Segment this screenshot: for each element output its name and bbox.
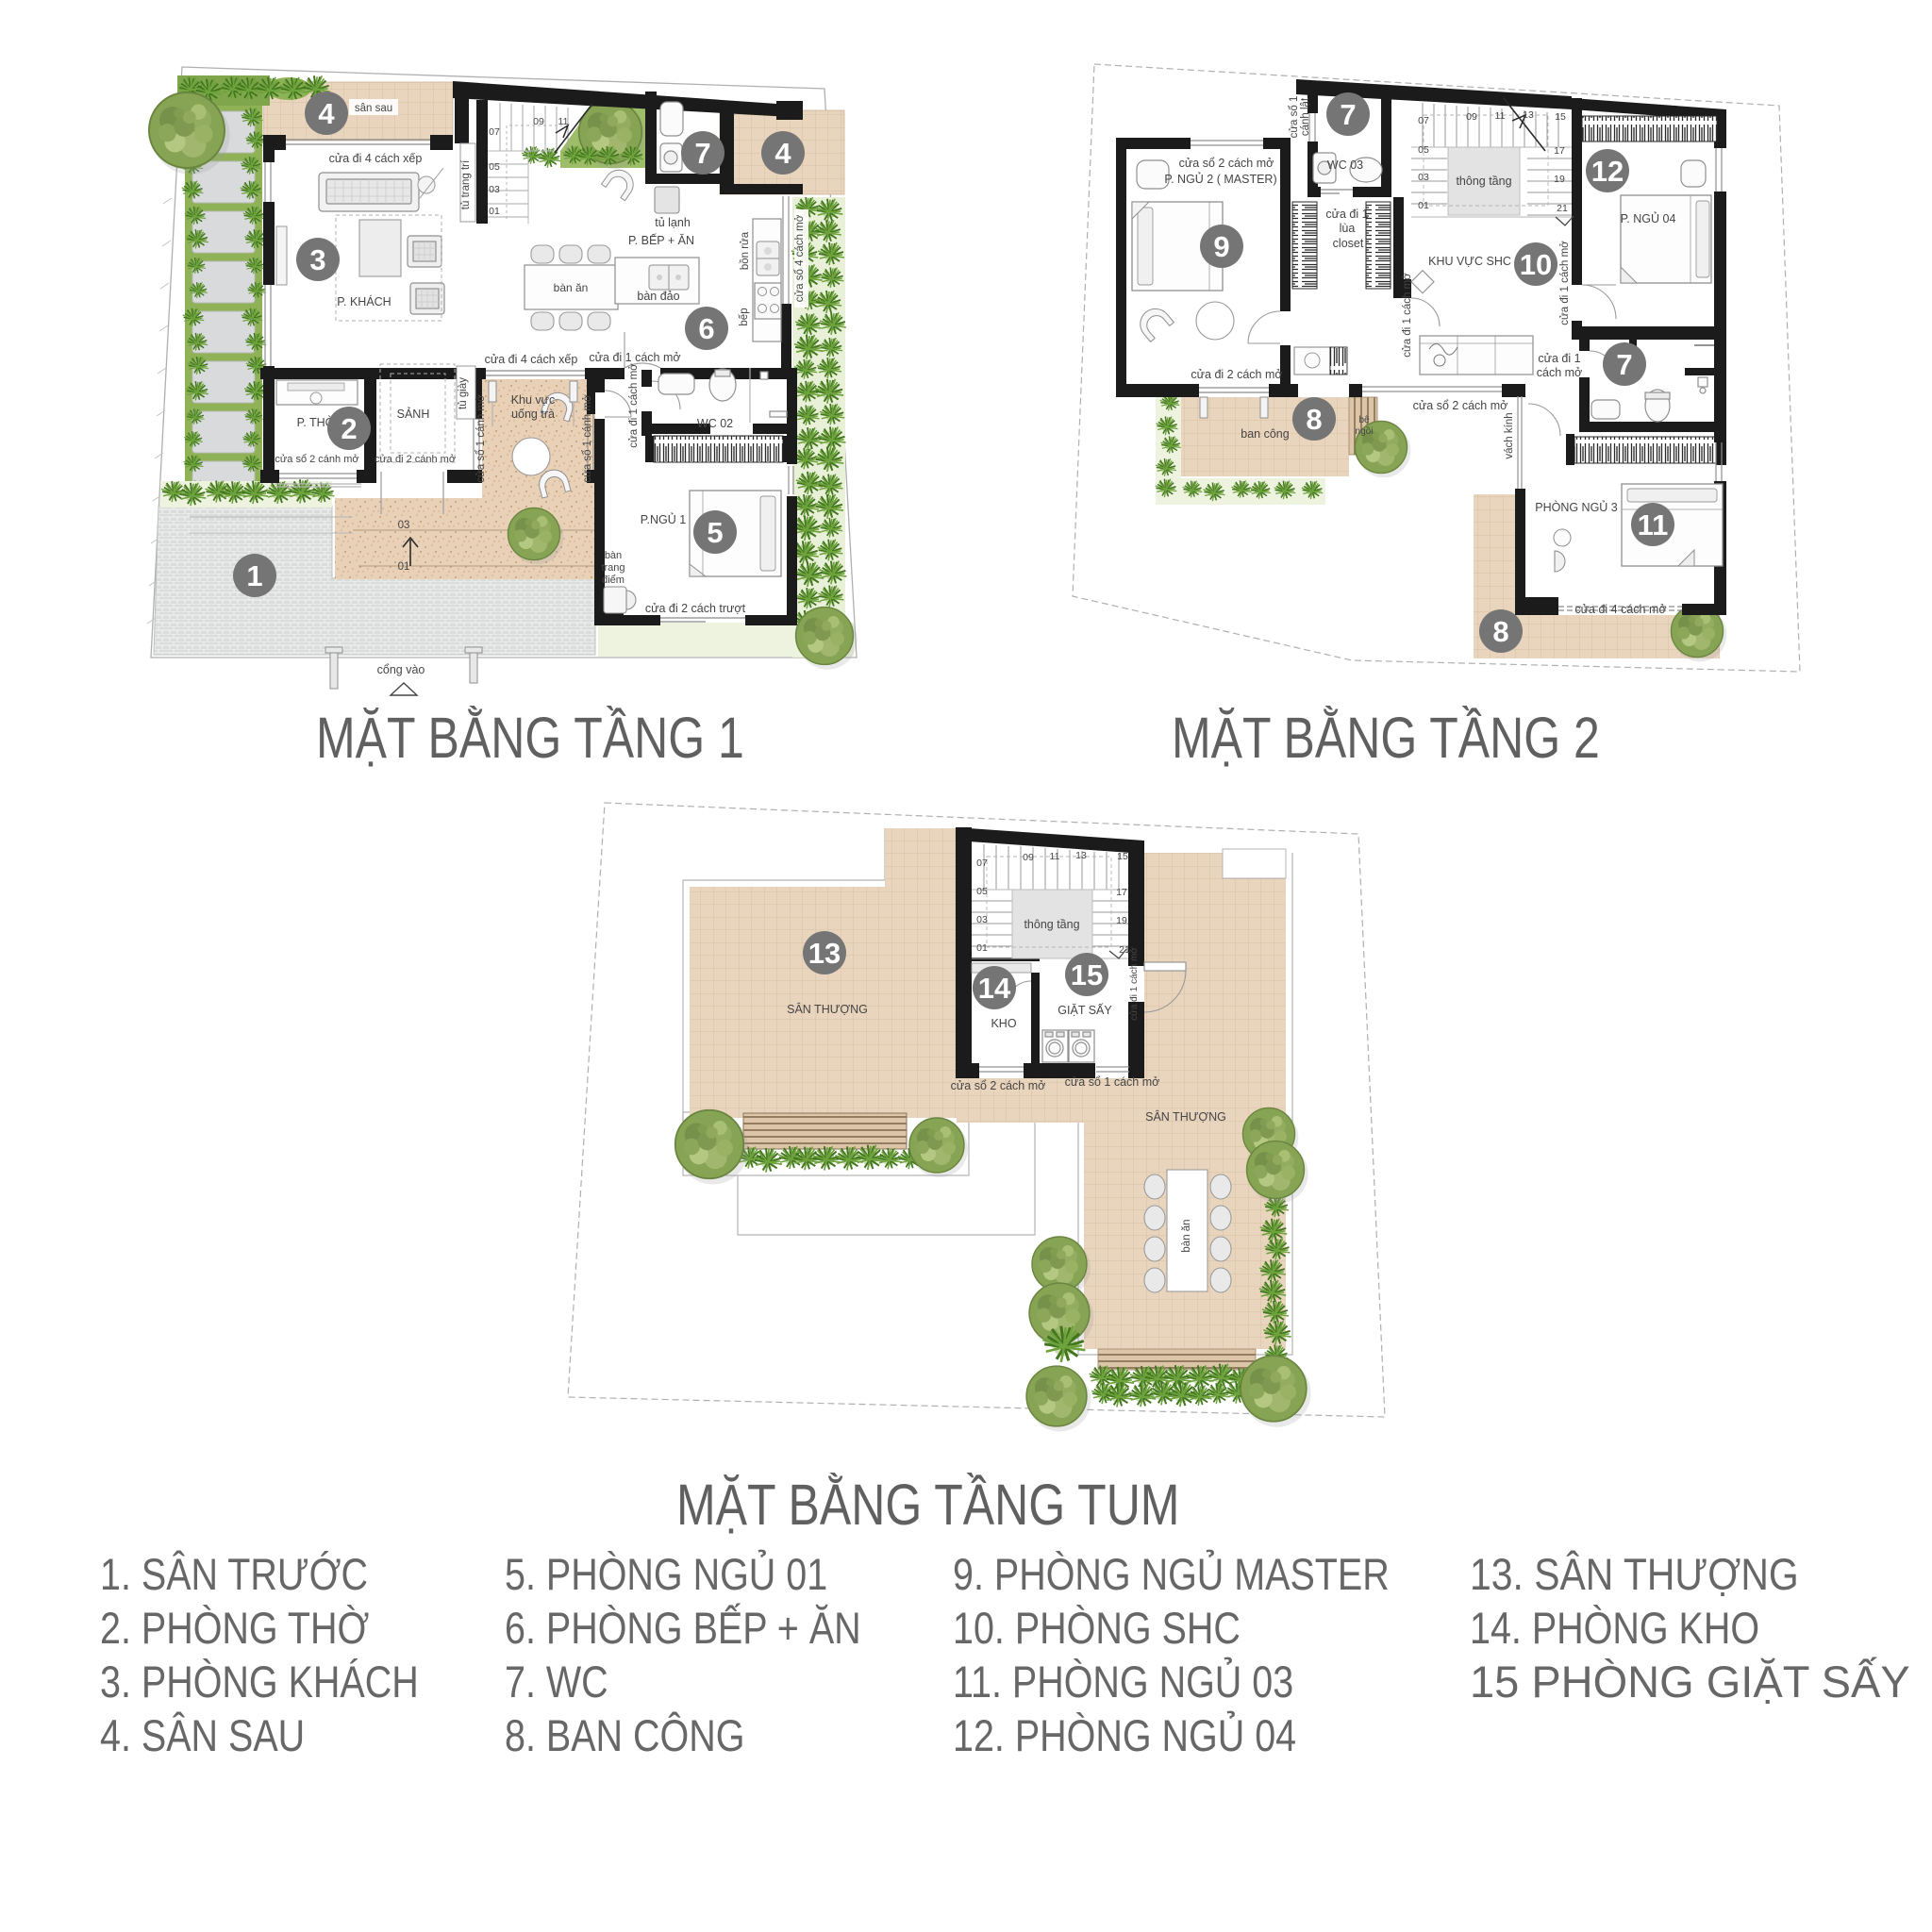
svg-text:tủ lạnh: tủ lạnh (655, 216, 691, 229)
svg-text:03: 03 (976, 914, 988, 925)
svg-text:GIẶT SẤY: GIẶT SẤY (1058, 1003, 1112, 1017)
svg-text:12. PHÒNG NGỦ 04: 12. PHÒNG NGỦ 04 (953, 1711, 1296, 1761)
svg-text:14. PHÒNG KHO: 14. PHÒNG KHO (1470, 1605, 1759, 1654)
svg-text:13. SÂN THƯỢNG: 13. SÂN THƯỢNG (1470, 1550, 1799, 1599)
svg-text:tủ giày: tủ giày (458, 377, 469, 409)
svg-text:7: 7 (1616, 348, 1632, 381)
svg-text:cửa đi 4 cách xếp: cửa đi 4 cách xếp (485, 353, 578, 366)
svg-text:cửa đi 1 cách mở: cửa đi 1 cách mở (1559, 241, 1571, 325)
svg-text:01: 01 (489, 206, 500, 217)
svg-text:13: 13 (1075, 850, 1087, 861)
svg-text:MẶT BẰNG TẦNG TUM: MẶT BẰNG TẦNG TUM (676, 1473, 1179, 1537)
svg-text:11: 11 (1050, 851, 1060, 862)
svg-text:MẶT BẰNG TẦNG 2: MẶT BẰNG TẦNG 2 (1172, 706, 1600, 770)
svg-text:8: 8 (1492, 615, 1508, 648)
svg-text:SÂN THƯỢNG: SÂN THƯỢNG (787, 1002, 868, 1016)
svg-text:05: 05 (976, 886, 988, 897)
svg-text:uống trà: uống trà (511, 408, 555, 421)
svg-text:thông tầng: thông tầng (1456, 175, 1511, 188)
svg-text:P. NGỦ 2 ( MASTER): P. NGỦ 2 ( MASTER) (1164, 172, 1276, 186)
svg-text:1. SÂN TRƯỚC: 1. SÂN TRƯỚC (100, 1551, 368, 1600)
svg-text:15: 15 (1117, 851, 1128, 862)
svg-text:05: 05 (489, 161, 500, 173)
svg-text:4. SÂN SAU: 4. SÂN SAU (100, 1712, 305, 1761)
svg-text:WC 02: WC 02 (697, 417, 733, 430)
svg-text:07: 07 (1418, 115, 1429, 126)
svg-text:cửa đi 2 cánh mở: cửa đi 2 cánh mở (375, 454, 456, 465)
svg-text:7. WC: 7. WC (505, 1658, 608, 1707)
svg-text:bồn rửa: bồn rửa (740, 231, 751, 270)
svg-text:2. PHÒNG THỜ: 2. PHÒNG THỜ (100, 1605, 369, 1654)
svg-text:12: 12 (1591, 155, 1624, 188)
svg-text:cửa đi 4 cách xếp: cửa đi 4 cách xếp (329, 152, 423, 165)
svg-text:P. KHÁCH: P. KHÁCH (337, 294, 391, 308)
svg-text:13: 13 (808, 937, 841, 970)
svg-text:1: 1 (246, 559, 262, 592)
svg-text:cửa đi 1 cách mở: cửa đi 1 cách mở (1128, 947, 1140, 1021)
svg-text:11: 11 (1638, 508, 1669, 541)
svg-text:cửa sổ 1 cánh mở: cửa sổ 1 cánh mở (475, 394, 487, 483)
svg-text:10. PHÒNG SHC: 10. PHÒNG SHC (953, 1605, 1241, 1654)
svg-text:6: 6 (698, 312, 714, 345)
svg-text:lùa: lùa (1340, 222, 1356, 235)
svg-text:cửa đi 1: cửa đi 1 (1325, 208, 1368, 221)
svg-text:03: 03 (398, 520, 410, 531)
svg-text:cửa sổ 2 cách mở: cửa sổ 2 cách mở (1179, 157, 1274, 170)
svg-text:7: 7 (1340, 98, 1356, 131)
svg-text:2: 2 (341, 412, 357, 445)
svg-text:09: 09 (1023, 852, 1034, 863)
svg-text:trang: trang (601, 562, 625, 574)
svg-text:5. PHÒNG NGỦ 01: 5. PHÒNG NGỦ 01 (505, 1550, 827, 1600)
svg-text:4: 4 (318, 97, 335, 130)
svg-text:8: 8 (1306, 403, 1322, 436)
svg-text:09: 09 (1466, 111, 1477, 123)
svg-text:cửa sổ 2 cách mở: cửa sổ 2 cách mở (951, 1079, 1046, 1092)
svg-text:Khu vực: Khu vực (511, 393, 556, 407)
svg-text:bàn ăn: bàn ăn (554, 281, 589, 294)
svg-text:sân sau: sân sau (355, 103, 392, 114)
svg-text:11: 11 (558, 116, 569, 127)
svg-text:MẶT BẰNG TẦNG 1: MẶT BẰNG TẦNG 1 (316, 706, 744, 770)
svg-text:cửa sổ 1 cách mở: cửa sổ 1 cách mở (1065, 1075, 1160, 1089)
svg-text:3. PHÒNG KHÁCH: 3. PHÒNG KHÁCH (100, 1658, 419, 1707)
svg-text:9. PHÒNG NGỦ MASTER: 9. PHÒNG NGỦ MASTER (953, 1550, 1390, 1600)
svg-text:15: 15 (1555, 111, 1566, 123)
svg-text:05: 05 (1418, 144, 1429, 156)
svg-text:bệ: bệ (1358, 415, 1370, 425)
svg-text:cánh lật: cánh lật (1300, 97, 1311, 136)
svg-text:cửa đi 1: cửa đi 1 (1538, 352, 1580, 365)
svg-text:cửa sổ 2 cách mở: cửa sổ 2 cách mở (1413, 399, 1508, 412)
svg-text:bàn: bàn (605, 550, 622, 561)
svg-text:07: 07 (489, 126, 500, 138)
svg-text:3: 3 (309, 243, 325, 276)
svg-text:cửa đi 1 cách mở: cửa đi 1 cách mở (628, 363, 640, 448)
svg-text:closet: closet (1333, 237, 1364, 250)
svg-text:11: 11 (1495, 110, 1506, 122)
svg-text:tủ trang trí: tủ trang trí (460, 159, 472, 209)
svg-text:cổng vào: cổng vào (377, 663, 425, 676)
svg-text:07: 07 (976, 858, 988, 869)
svg-text:01: 01 (1418, 200, 1429, 211)
svg-text:7: 7 (694, 137, 710, 170)
svg-text:P. BẾP + ĂN: P. BẾP + ĂN (628, 233, 694, 247)
svg-text:vách kính: vách kính (1504, 412, 1515, 458)
svg-text:cửa sổ 1: cửa sổ 1 (1289, 96, 1300, 139)
svg-text:SÂN THƯỢNG: SÂN THƯỢNG (1145, 1109, 1226, 1124)
svg-text:SẢNH: SẢNH (397, 407, 430, 421)
svg-text:14: 14 (978, 972, 1011, 1005)
svg-text:cửa sổ 1 cánh mở: cửa sổ 1 cánh mở (582, 394, 593, 483)
svg-text:cách mở: cách mở (1537, 366, 1583, 379)
svg-text:13: 13 (1523, 109, 1534, 121)
svg-text:19: 19 (1554, 174, 1565, 185)
svg-text:P.NGỦ 1: P.NGỦ 1 (641, 512, 686, 526)
svg-text:bếp: bếp (739, 308, 750, 325)
svg-text:cửa đi 4 cách mở: cửa đi 4 cách mở (1574, 603, 1666, 616)
svg-text:bàn đảo: bàn đảo (637, 290, 679, 303)
svg-text:cửa đi 1 cách mở: cửa đi 1 cách mở (1402, 273, 1413, 358)
svg-text:09: 09 (533, 116, 544, 127)
svg-text:01: 01 (398, 561, 410, 573)
svg-text:điểm: điểm (602, 575, 625, 586)
svg-text:17: 17 (1116, 887, 1127, 898)
svg-text:thông tầng: thông tầng (1024, 918, 1079, 931)
svg-text:9: 9 (1213, 230, 1229, 263)
svg-text:KHU VỰC SHC: KHU VỰC SHC (1428, 255, 1511, 268)
svg-text:KHO: KHO (991, 1017, 1016, 1030)
svg-text:5: 5 (707, 516, 723, 549)
svg-text:cửa đi 1 cách mở: cửa đi 1 cách mở (589, 351, 680, 364)
svg-text:01: 01 (976, 942, 988, 954)
svg-text:bàn ăn: bàn ăn (1181, 1219, 1192, 1252)
svg-text:4: 4 (774, 137, 791, 170)
svg-text:ngồi: ngồi (1356, 425, 1374, 437)
svg-text:10: 10 (1520, 248, 1552, 281)
svg-text:19: 19 (1116, 915, 1127, 926)
svg-text:11. PHÒNG NGỦ 03: 11. PHÒNG NGỦ 03 (953, 1657, 1293, 1707)
svg-text:6. PHÒNG BẾP + ĂN: 6. PHÒNG BẾP + ĂN (505, 1605, 861, 1654)
svg-text:P. NGỦ 04: P. NGỦ 04 (1621, 211, 1676, 225)
svg-text:cửa sổ 4 cách mở: cửa sổ 4 cách mở (794, 214, 806, 302)
svg-text:cửa sổ 2 cánh mở: cửa sổ 2 cánh mở (275, 454, 358, 465)
svg-text:15: 15 (1071, 958, 1103, 991)
svg-text:ban công: ban công (1241, 427, 1289, 441)
svg-text:8. BAN CÔNG: 8. BAN CÔNG (505, 1712, 744, 1761)
svg-text:03: 03 (489, 184, 500, 195)
svg-text:21: 21 (1557, 203, 1568, 214)
svg-text:cửa đi 2 cách trượt: cửa đi 2 cách trượt (645, 602, 746, 615)
svg-text:PHÒNG NGỦ 3: PHÒNG NGỦ 3 (1535, 500, 1618, 514)
svg-text:03: 03 (1418, 172, 1429, 183)
svg-text:cửa đi 2 cách mở: cửa đi 2 cách mở (1191, 368, 1282, 381)
svg-text:WC 03: WC 03 (1327, 158, 1363, 172)
svg-text:17: 17 (1554, 145, 1565, 157)
svg-text:15 PHÒNG GIẶT SẤY: 15 PHÒNG GIẶT SẤY (1470, 1657, 1910, 1707)
